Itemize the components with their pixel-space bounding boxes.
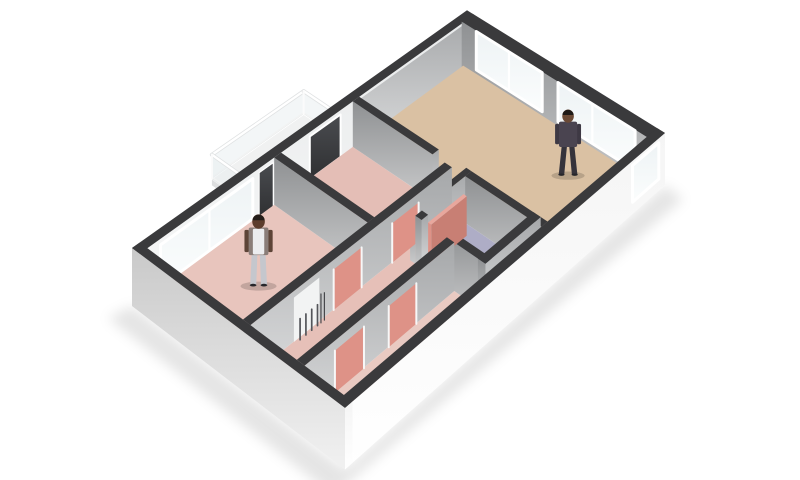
arm-right xyxy=(577,124,581,144)
torso xyxy=(559,122,577,147)
vest xyxy=(253,229,264,255)
foot-right xyxy=(572,173,578,175)
floor-plan-viewport xyxy=(0,0,800,480)
arm-left xyxy=(244,230,249,252)
person-ground-shadow xyxy=(241,282,277,291)
foot-left xyxy=(558,173,564,175)
floor-plan-3d-view xyxy=(0,0,800,480)
render-root xyxy=(108,10,683,480)
arm-left xyxy=(555,124,559,144)
foot-left xyxy=(250,284,257,287)
arm-right xyxy=(268,230,273,252)
foot-right xyxy=(261,284,268,287)
outer-wall-west-face-right xyxy=(345,401,353,469)
person-ground-shadow xyxy=(551,172,584,180)
